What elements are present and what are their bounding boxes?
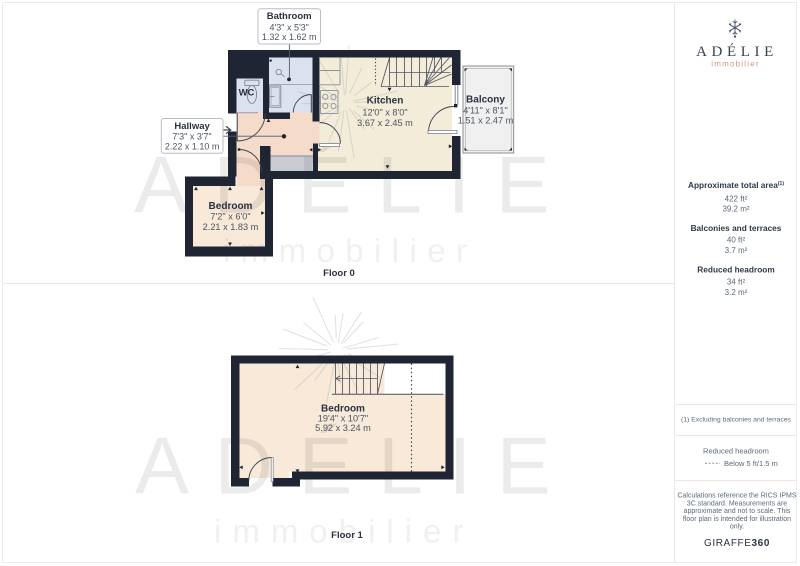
svg-text:ADÉLIE: ADÉLIE	[696, 43, 778, 60]
svg-text:Reduced headroom: Reduced headroom	[703, 447, 769, 456]
svg-text:1.32 x 1.62 m: 1.32 x 1.62 m	[262, 32, 317, 42]
svg-text:Calculations reference the RIC: Calculations reference the RICS IPMS	[677, 493, 796, 500]
svg-text:Balconies and terraces: Balconies and terraces	[691, 223, 782, 233]
svg-text:Hallway: Hallway	[174, 121, 210, 132]
svg-text:Bathroom: Bathroom	[267, 11, 312, 22]
svg-text:2.21 x 1.83 m: 2.21 x 1.83 m	[203, 222, 259, 232]
svg-text:WC: WC	[239, 88, 255, 99]
svg-text:4'11" x 8'1": 4'11" x 8'1"	[463, 106, 508, 116]
svg-text:Kitchen: Kitchen	[367, 96, 404, 107]
svg-text:422 ft²: 422 ft²	[725, 195, 748, 204]
svg-text:3C standard. Measurements are: 3C standard. Measurements are	[687, 500, 787, 507]
svg-text:only.: only.	[730, 524, 744, 531]
svg-text:(1) Excluding balconies and te: (1) Excluding balconies and terraces	[681, 417, 792, 424]
svg-text:3.67 x 2.45 m: 3.67 x 2.45 m	[357, 118, 413, 128]
svg-text:2.22 x 1.10 m: 2.22 x 1.10 m	[165, 142, 220, 152]
svg-text:34 ft²: 34 ft²	[727, 278, 746, 287]
svg-text:floor plan is intended for ill: floor plan is intended for illustration	[683, 516, 791, 523]
svg-text:12'0" x 8'0": 12'0" x 8'0"	[362, 108, 407, 118]
svg-text:40 ft²: 40 ft²	[727, 236, 746, 245]
svg-text:3.7 m²: 3.7 m²	[725, 246, 748, 255]
svg-text:GIRAFFE360: GIRAFFE360	[704, 538, 770, 549]
svg-text:Floor 0: Floor 0	[323, 268, 355, 279]
svg-text:Reduced headroom: Reduced headroom	[697, 265, 774, 275]
svg-text:Below 5 ft/1.5 m: Below 5 ft/1.5 m	[724, 459, 778, 468]
svg-text:immobilier: immobilier	[711, 60, 759, 69]
svg-text:ADÉLIE: ADÉLIE	[135, 422, 576, 512]
svg-text:39.2 m²: 39.2 m²	[722, 205, 749, 214]
svg-text:Approximate total area(1): Approximate total area(1)	[688, 180, 784, 190]
svg-text:Balcony: Balcony	[466, 95, 505, 106]
svg-text:Bedroom: Bedroom	[209, 201, 253, 212]
svg-text:7'2" x 6'0": 7'2" x 6'0"	[210, 212, 250, 222]
svg-text:3.2 m²: 3.2 m²	[725, 288, 748, 297]
svg-text:19'4" x 10'7": 19'4" x 10'7"	[318, 414, 368, 424]
svg-text:Floor 1: Floor 1	[331, 530, 363, 541]
svg-text:4'3" x 5'3": 4'3" x 5'3"	[270, 23, 309, 33]
svg-text:1.51 x 2.47 m: 1.51 x 2.47 m	[458, 116, 514, 126]
svg-text:approximate and not to scale.: approximate and not to scale. This	[684, 508, 791, 515]
svg-text:7'3" x 3'7": 7'3" x 3'7"	[172, 132, 211, 142]
svg-text:5.92 x 3.24 m: 5.92 x 3.24 m	[315, 423, 371, 433]
